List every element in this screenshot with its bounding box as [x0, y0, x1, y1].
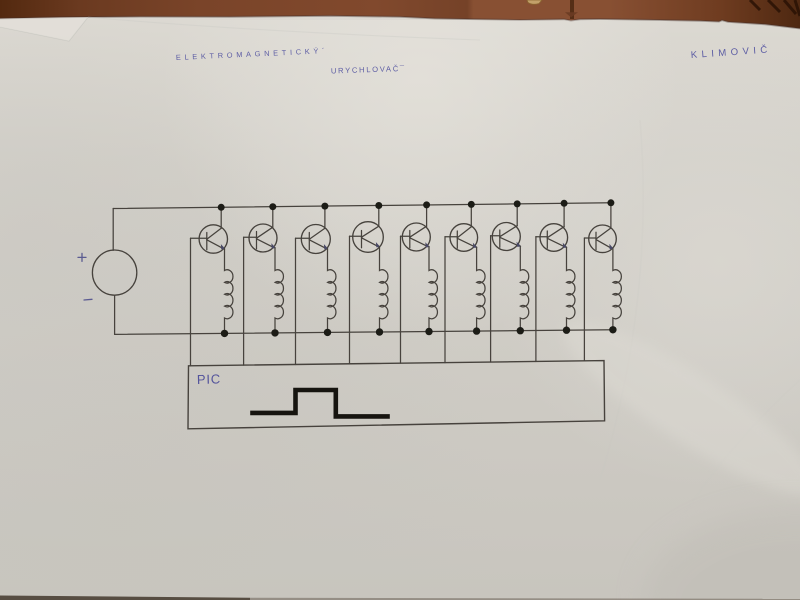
svg-text:PIC: PIC [197, 371, 221, 387]
